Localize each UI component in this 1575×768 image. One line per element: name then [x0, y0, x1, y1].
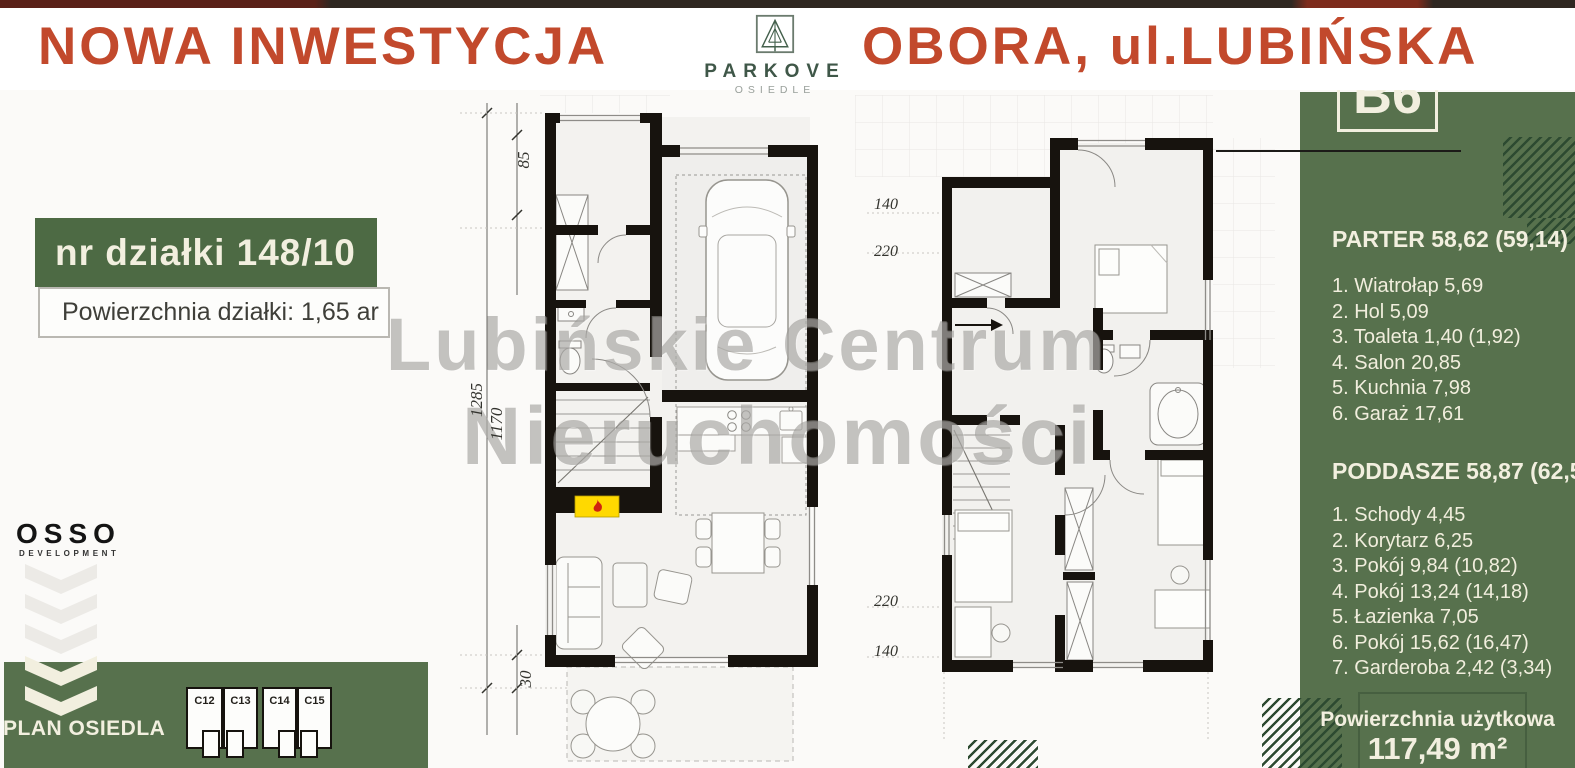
siteplan-stub [278, 730, 296, 758]
logo-sub: OSIEDLE [700, 84, 850, 96]
hatch-decoration-bottom-center [968, 740, 1038, 768]
chevron-down-icon-gray [25, 564, 97, 660]
header-title-right: OBORA, ul.LUBIŃSKA [862, 16, 1478, 77]
dim-label-1170: 1170 [487, 401, 507, 447]
developer-logo-sub: DEVELOPMENT [19, 549, 139, 558]
poddasze-title: PODDASZE 58,87 (62,56) [1332, 458, 1575, 485]
dim-label-1285: 1285 [467, 377, 487, 423]
watermark-line1: Lubińskie Centrum [386, 302, 1107, 387]
logo-name: PARKOVE [700, 61, 850, 83]
siteplan-stub [226, 730, 244, 758]
usable-area-value: 117,49 m² [1300, 731, 1575, 767]
header-band: NOWA INWESTYCJA PARKOVE OSIEDLE OBORA, u… [0, 8, 1575, 90]
dim-label-220-top: 220 [874, 243, 914, 261]
fireplace-icon [575, 496, 619, 517]
room-line: 5. Kuchnia 7,98 [1332, 376, 1521, 402]
parter-title: PARTER 58,62 (59,14) [1332, 226, 1568, 253]
room-line: 2. Hol 5,09 [1332, 300, 1521, 326]
hatch-decoration-top [1503, 137, 1575, 218]
room-line: 5. Łazienka 7,05 [1332, 605, 1552, 631]
dim-label-220-bottom: 220 [874, 593, 914, 611]
room-line: 3. Pokój 9,84 (10,82) [1332, 554, 1552, 580]
parkove-logo: PARKOVE OSIEDLE [700, 14, 850, 96]
dim-label-140-top: 140 [874, 196, 914, 214]
developer-logo: OSSO [16, 518, 136, 550]
room-line: 1. Wiatrołap 5,69 [1332, 274, 1521, 300]
plot-area-box: Powierzchnia działki: 1,65 ar [38, 287, 390, 338]
watermark-line2: Nieruchomości [462, 390, 1093, 484]
siteplan-stub [300, 730, 318, 758]
usable-area-label: Powierzchnia użytkowa [1300, 708, 1575, 732]
dim-label-85: 85 [514, 137, 534, 183]
room-line: 1. Schody 4,45 [1332, 503, 1552, 529]
dim-label-30: 30 [516, 656, 536, 702]
parter-room-list: 1. Wiatrołap 5,692. Hol 5,093. Toaleta 1… [1332, 274, 1521, 427]
room-line: 4. Pokój 13,24 (14,18) [1332, 580, 1552, 606]
dimension-line [1216, 150, 1461, 152]
room-line: 7. Garderoba 2,42 (3,34) [1332, 656, 1552, 682]
room-line: 2. Korytarz 6,25 [1332, 529, 1552, 555]
room-line: 4. Salon 20,85 [1332, 351, 1521, 377]
top-strip [0, 0, 1575, 8]
room-line: 6. Garaż 17,61 [1332, 402, 1521, 428]
flyer-canvas: Lubińskie Centrum Nieruchomości 85 1285 … [0, 0, 1575, 768]
room-line: 3. Toaleta 1,40 (1,92) [1332, 325, 1521, 351]
header-title-left: NOWA INWESTYCJA [38, 16, 608, 77]
plot-number-box: nr działki 148/10 [35, 218, 377, 287]
dim-label-140-bottom: 140 [874, 643, 914, 661]
siteplan-label: PLAN OSIEDLA [3, 717, 165, 741]
poddasze-room-list: 1. Schody 4,452. Korytarz 6,253. Pokój 9… [1332, 503, 1552, 682]
chevron-down-icon-cream [25, 656, 97, 722]
siteplan-stub [202, 730, 220, 758]
siteplan-map: C12 C13 C14 C15 [186, 684, 336, 766]
room-line: 6. Pokój 15,62 (16,47) [1332, 631, 1552, 657]
pine-tree-icon [755, 14, 795, 54]
